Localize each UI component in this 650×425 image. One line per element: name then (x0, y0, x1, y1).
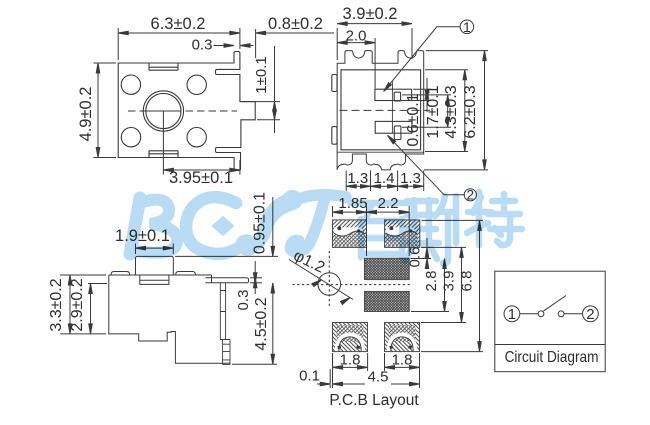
svg-text:4.5: 4.5 (368, 369, 389, 386)
svg-text:3.9: 3.9 (441, 271, 458, 292)
svg-text:3.95±0.1: 3.95±0.1 (169, 169, 233, 187)
svg-text:4.3±0.3: 4.3±0.3 (443, 85, 460, 138)
svg-text:1.8: 1.8 (340, 352, 361, 369)
svg-text:6.2±0.3: 6.2±0.3 (462, 85, 479, 138)
svg-text:2.8: 2.8 (423, 271, 440, 292)
svg-text:2.0: 2.0 (346, 28, 367, 45)
svg-text:0.6±0.1: 0.6±0.1 (405, 93, 422, 146)
svg-text:0.1: 0.1 (299, 368, 320, 385)
svg-text:0.3: 0.3 (192, 36, 213, 53)
svg-text:0.8±0.2: 0.8±0.2 (268, 15, 323, 33)
svg-text:2.9±0.2: 2.9±0.2 (69, 278, 86, 331)
svg-text:4.5±0.2: 4.5±0.2 (253, 297, 270, 350)
svg-text:1±0.1: 1±0.1 (253, 56, 270, 93)
svg-text:1.3: 1.3 (400, 170, 421, 187)
svg-text:1.3: 1.3 (347, 170, 368, 187)
svg-text:Circuit Diagram: Circuit Diagram (505, 349, 599, 366)
svg-text:3.9±0.2: 3.9±0.2 (343, 5, 398, 23)
svg-text:P.C.B Layout: P.C.B Layout (329, 392, 419, 409)
svg-text:1.4: 1.4 (374, 170, 395, 187)
svg-text:1.8: 1.8 (392, 352, 413, 369)
svg-text:1: 1 (463, 19, 471, 35)
svg-text:2: 2 (467, 188, 475, 203)
svg-text:6.3±0.2: 6.3±0.2 (151, 15, 206, 33)
svg-text:3.3±0.2: 3.3±0.2 (48, 278, 65, 331)
svg-text:6.8: 6.8 (459, 271, 476, 292)
svg-text:1: 1 (508, 306, 516, 323)
svg-text:2: 2 (586, 306, 594, 323)
svg-text:0.3: 0.3 (235, 290, 252, 311)
svg-text:4.9±0.2: 4.9±0.2 (77, 87, 95, 142)
svg-text:1.7±0.1: 1.7±0.1 (425, 85, 442, 138)
